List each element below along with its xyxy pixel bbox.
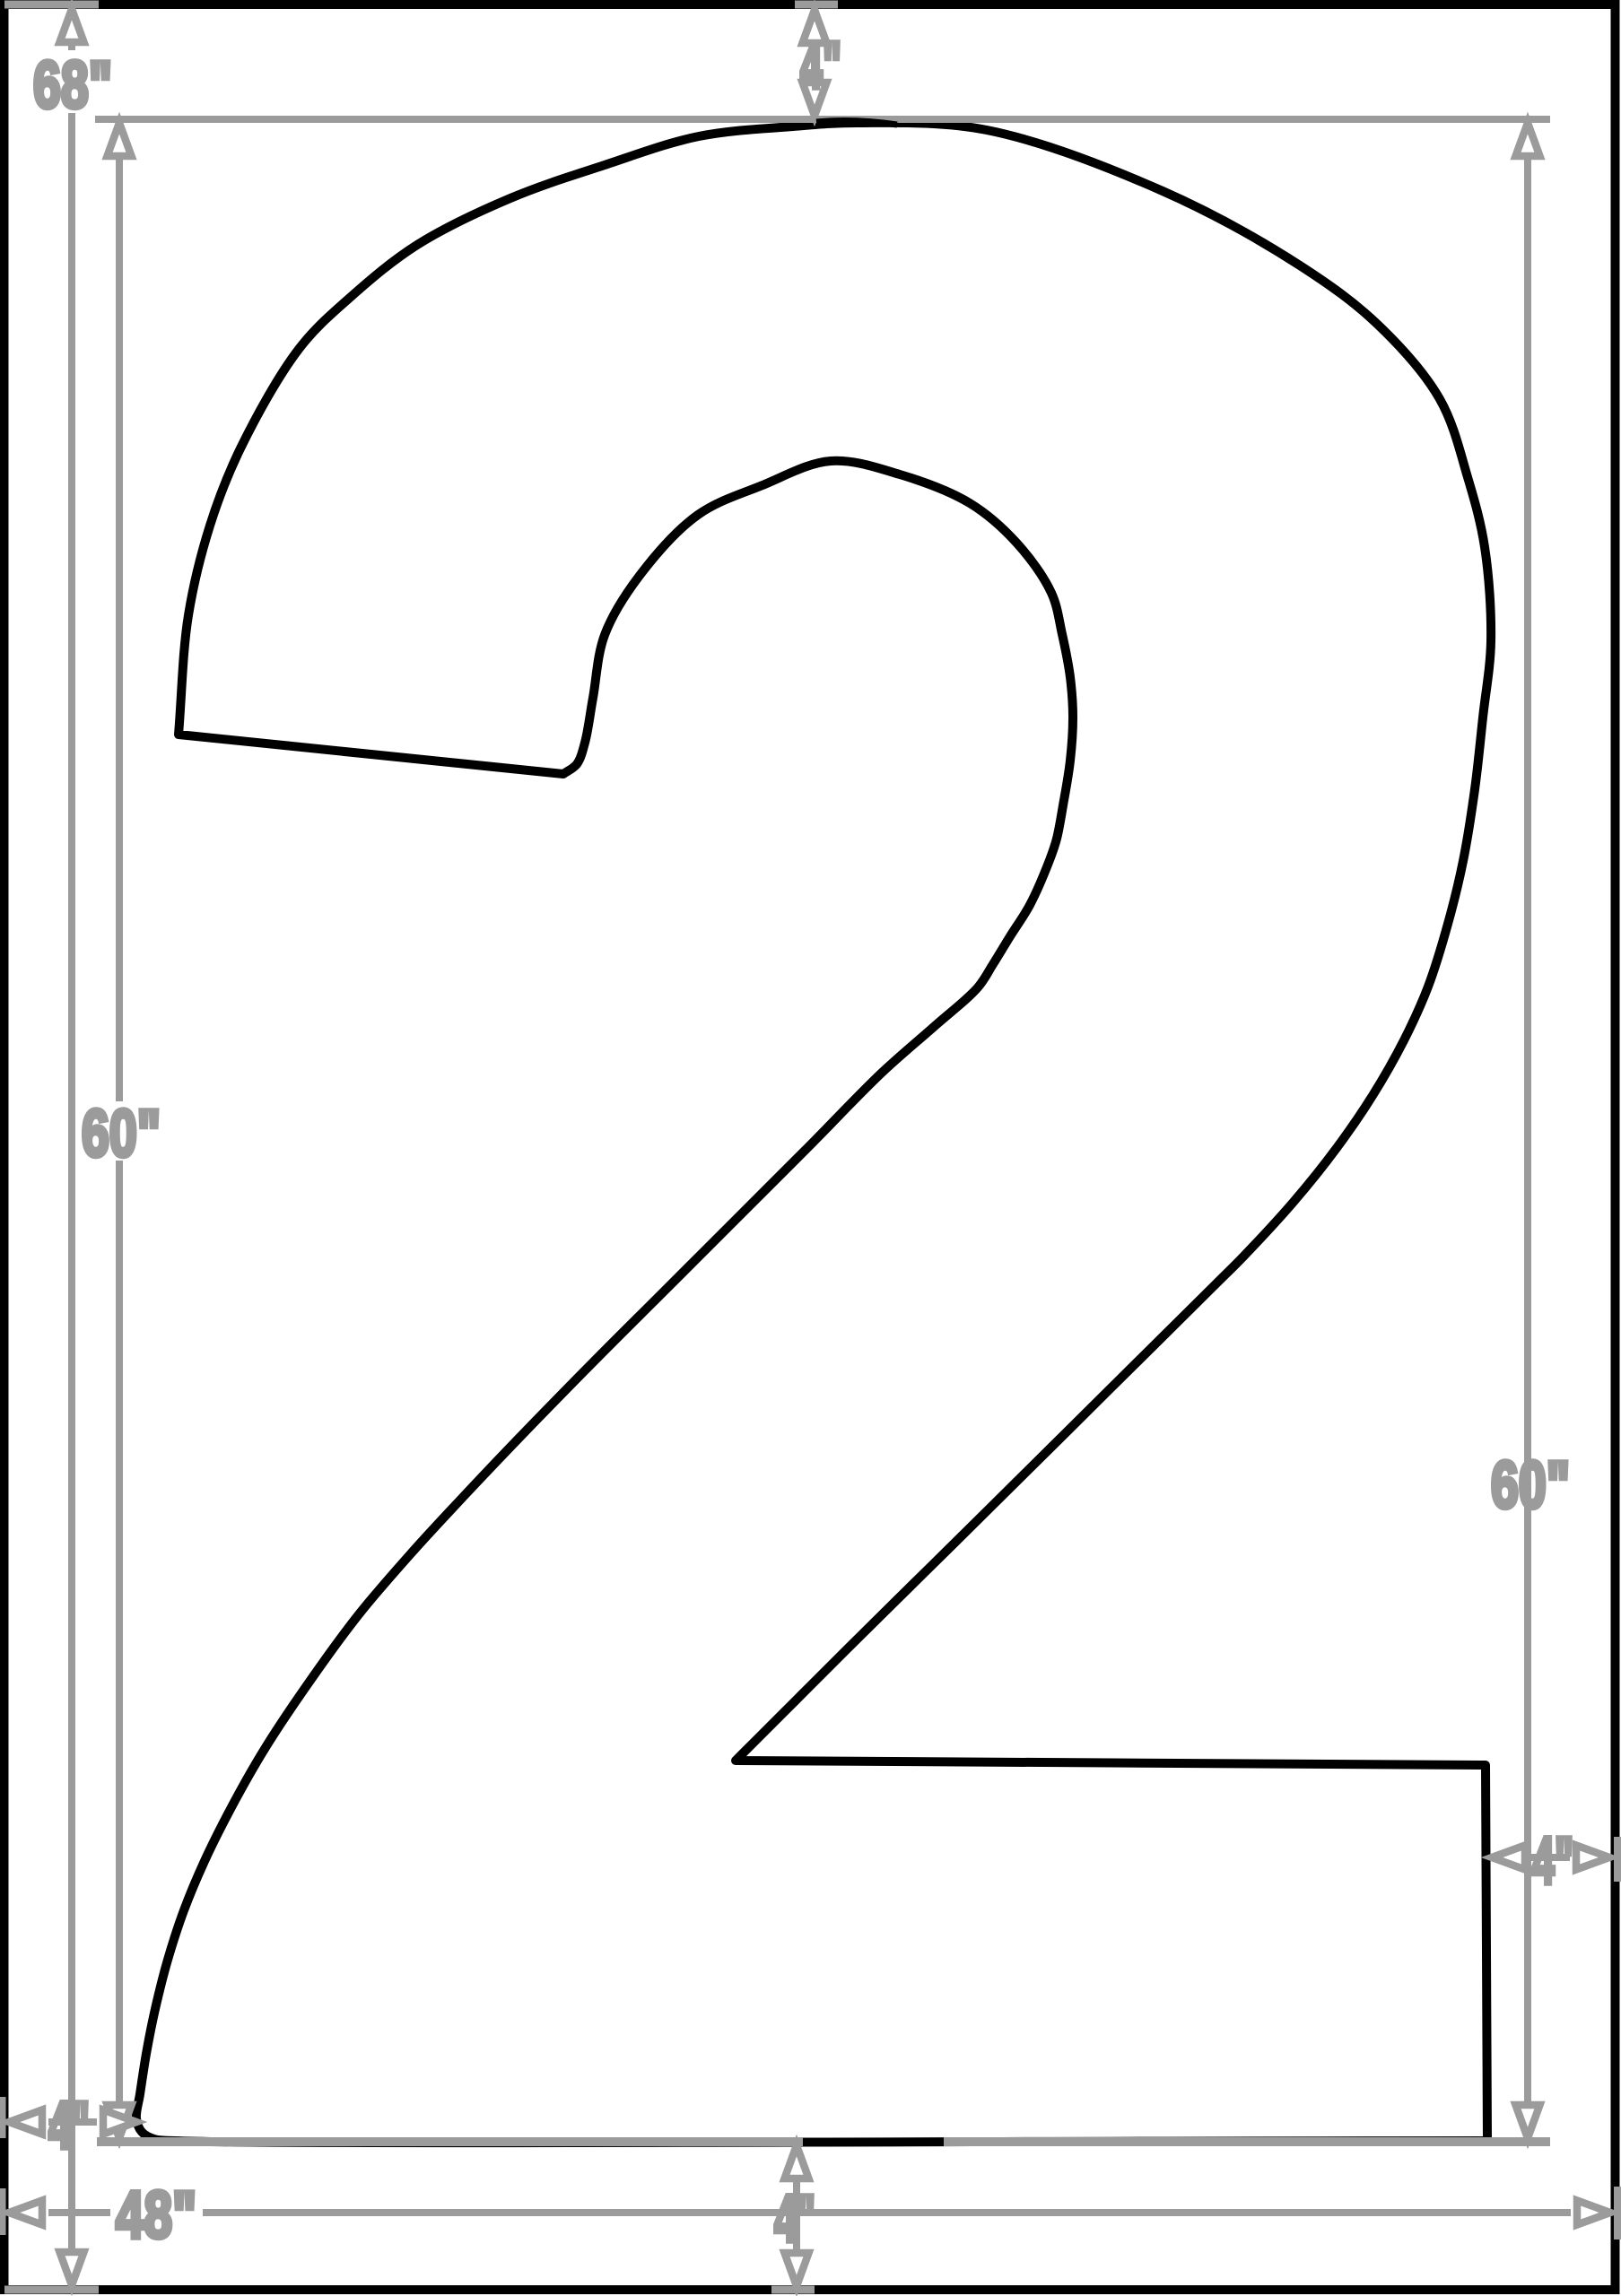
svg-text:4": 4" xyxy=(48,2088,90,2162)
svg-text:4": 4" xyxy=(774,2181,815,2256)
svg-text:48": 48" xyxy=(116,2178,196,2252)
svg-text:60": 60" xyxy=(82,1096,161,1170)
svg-text:68": 68" xyxy=(33,48,112,122)
svg-text:4": 4" xyxy=(800,28,841,102)
svg-text:4": 4" xyxy=(1532,1823,1573,1898)
svg-text:60": 60" xyxy=(1491,1448,1570,1522)
